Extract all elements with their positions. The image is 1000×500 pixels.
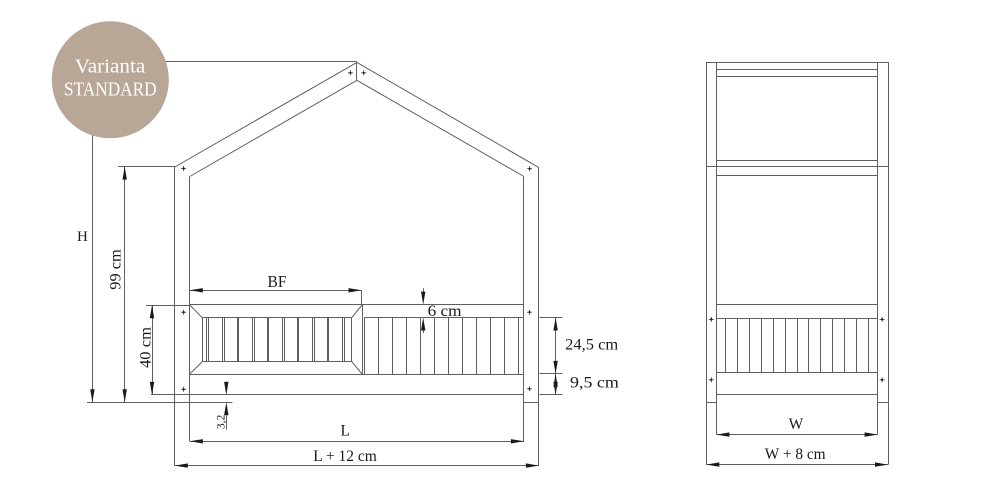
svg-text:99 cm: 99 cm xyxy=(107,249,124,290)
svg-text:BF: BF xyxy=(268,272,287,291)
svg-text:24,5 cm: 24,5 cm xyxy=(565,337,618,354)
svg-text:H: H xyxy=(77,229,88,245)
svg-text:W: W xyxy=(789,416,804,433)
svg-text:Varianta: Varianta xyxy=(75,57,146,78)
svg-text:40 cm: 40 cm xyxy=(137,327,154,368)
svg-text:6 cm: 6 cm xyxy=(428,303,462,320)
svg-text:STANDARD: STANDARD xyxy=(64,79,157,101)
svg-text:L: L xyxy=(340,423,349,440)
svg-text:W + 8 cm: W + 8 cm xyxy=(765,446,826,463)
svg-text:3,2: 3,2 xyxy=(216,415,228,430)
svg-text:9,5 cm: 9,5 cm xyxy=(570,375,619,392)
svg-text:L + 12 cm: L + 12 cm xyxy=(313,448,377,465)
